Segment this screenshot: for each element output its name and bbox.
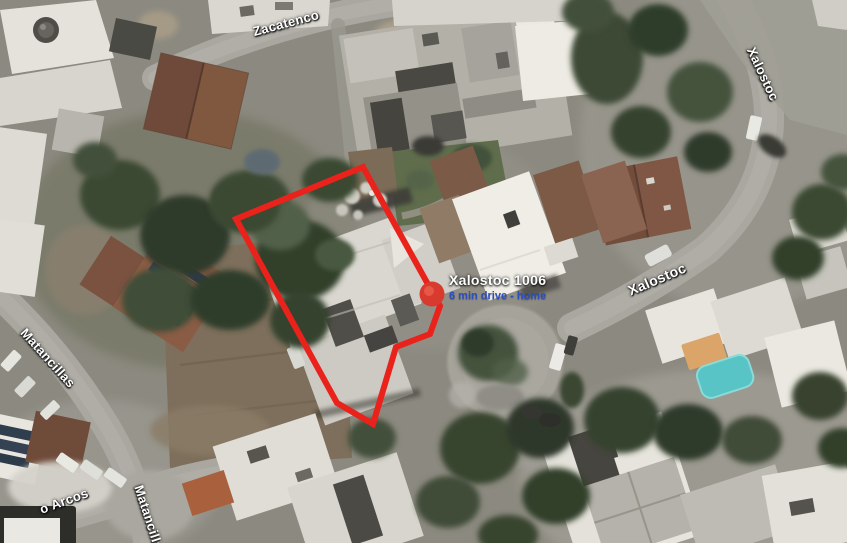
place-label: Xalostoc 1006 6 min drive - home [449, 272, 546, 302]
satellite-imagery [0, 0, 847, 543]
map-canvas[interactable]: Zacatenco Xalostoc Xalostoc Matancillas … [0, 0, 847, 543]
place-name: Xalostoc 1006 [449, 272, 546, 288]
place-marker-dot[interactable] [417, 279, 447, 309]
place-subtext-link[interactable]: 6 min drive - home [449, 290, 546, 302]
